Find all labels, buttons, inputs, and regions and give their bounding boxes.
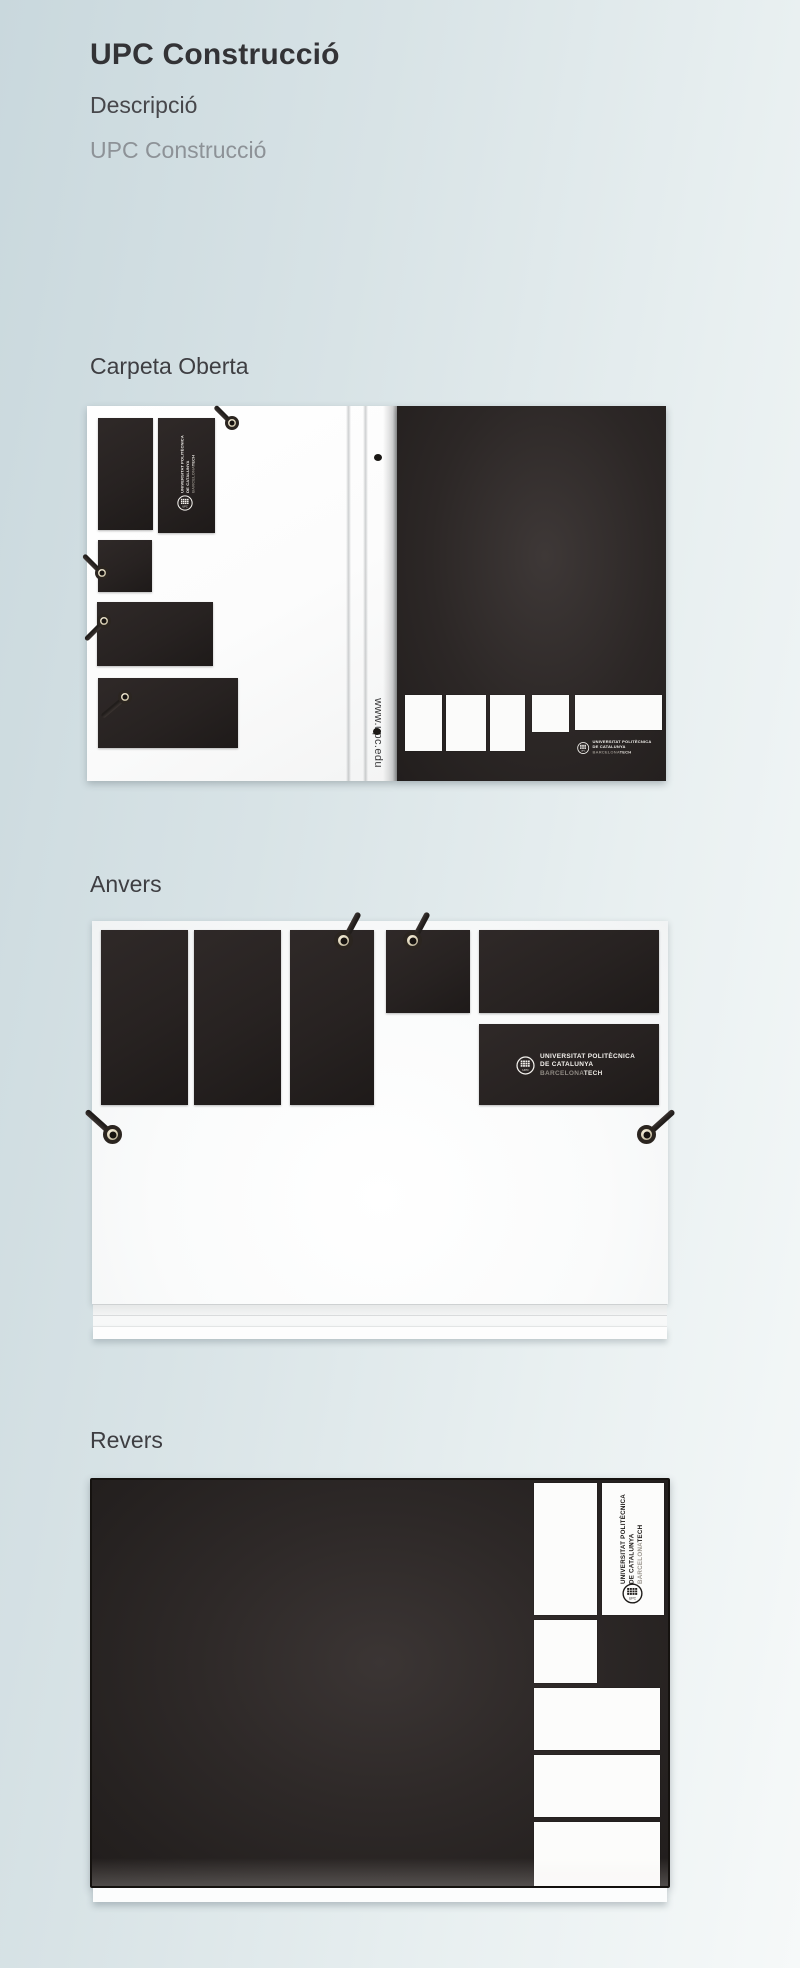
spine-eyelet-hole [374, 454, 382, 461]
white-panel [534, 1483, 597, 1615]
eyelet [334, 931, 353, 950]
eyelet [103, 1125, 122, 1144]
upc-emblem-icon [177, 495, 193, 511]
page-edge-strip [93, 1326, 667, 1339]
spine-fold-line [363, 406, 368, 781]
black-insert-card [386, 930, 470, 1013]
folder-bottom-page-edges [93, 1304, 667, 1339]
spine-eyelet-hole [373, 728, 381, 735]
white-panel [446, 695, 486, 751]
folder-bottom-edge [93, 1888, 667, 1902]
eyelet [637, 1125, 656, 1144]
upc-wordmark-vertical: UNIVERSITAT POLITÈCNICA DE CATALUNYA BAR… [180, 435, 196, 493]
black-business-card: UNIVERSITAT POLITÈCNICA DE CATALUNYA BAR… [479, 1024, 659, 1105]
white-panel [490, 695, 525, 751]
eyelet [95, 566, 109, 580]
open-folder-left-page: UNIVERSITAT POLITÈCNICA DE CATALUNYA BAR… [87, 406, 397, 781]
white-panel [575, 695, 662, 730]
white-panel [405, 695, 442, 751]
black-insert-card [101, 930, 188, 1105]
white-panel [534, 1620, 597, 1683]
carpeta-oberta-photo: UNIVERSITAT POLITÈCNICA DE CATALUNYA BAR… [87, 406, 666, 781]
revers-photo: UNIVERSITAT POLITÈCNICA DE CATALUNYA BAR… [90, 1478, 670, 1908]
description-label: Descripció [90, 92, 197, 119]
folder-front-face: UNIVERSITAT POLITÈCNICA DE CATALUNYA BAR… [92, 921, 668, 1304]
upc-emblem-icon [622, 1583, 643, 1604]
upc-brandmark: UNIVERSITAT POLITÈCNICA DE CATALUNYA BAR… [516, 1053, 635, 1078]
page-canvas: UPC Construcció Descripció UPC Construcc… [0, 0, 800, 1968]
eyelet [118, 690, 132, 704]
open-folder-right-cover: UNIVERSITAT POLITÈCNICA DE CATALUNYA BAR… [397, 406, 666, 781]
section-heading-anvers: Anvers [90, 871, 162, 898]
page-edge-strip [93, 1304, 667, 1315]
black-insert-card [98, 678, 238, 748]
black-insert-card [194, 930, 281, 1105]
page-title: UPC Construcció [90, 38, 340, 72]
white-panel [534, 1688, 660, 1750]
white-panel [534, 1755, 660, 1817]
description-value: UPC Construcció [90, 137, 266, 164]
eyelet [97, 614, 111, 628]
upc-emblem-icon [516, 1056, 535, 1075]
spine-fold-line [346, 406, 351, 781]
page-edge-strip [93, 1315, 667, 1326]
upc-emblem-icon [577, 742, 589, 754]
white-logo-card: UNIVERSITAT POLITÈCNICA DE CATALUNYA BAR… [602, 1483, 664, 1615]
upc-wordmark: UNIVERSITAT POLITÈCNICA DE CATALUNYA BAR… [593, 740, 652, 756]
black-insert-card [479, 930, 659, 1013]
black-insert-card [97, 602, 213, 666]
black-insert-card [290, 930, 374, 1105]
eyelet [403, 931, 422, 950]
section-heading-carpeta-oberta: Carpeta Oberta [90, 353, 249, 380]
upc-brandmark: UNIVERSITAT POLITÈCNICA DE CATALUNYA BAR… [577, 740, 651, 756]
eyelet [225, 416, 239, 430]
black-logo-card: UNIVERSITAT POLITÈCNICA DE CATALUNYA BAR… [158, 418, 215, 533]
white-panel [532, 695, 569, 732]
spine-gutter-shadow [383, 406, 397, 781]
section-heading-revers: Revers [90, 1427, 163, 1454]
upc-wordmark-vertical: UNIVERSITAT POLITÈCNICA DE CATALUNYA BAR… [619, 1494, 644, 1584]
black-insert-card [98, 418, 153, 530]
cover-bottom-sheen [92, 1858, 668, 1886]
anvers-photo: UNIVERSITAT POLITÈCNICA DE CATALUNYA BAR… [92, 921, 668, 1351]
upc-wordmark: UNIVERSITAT POLITÈCNICA DE CATALUNYA BAR… [540, 1053, 635, 1078]
black-insert-card [98, 540, 152, 592]
